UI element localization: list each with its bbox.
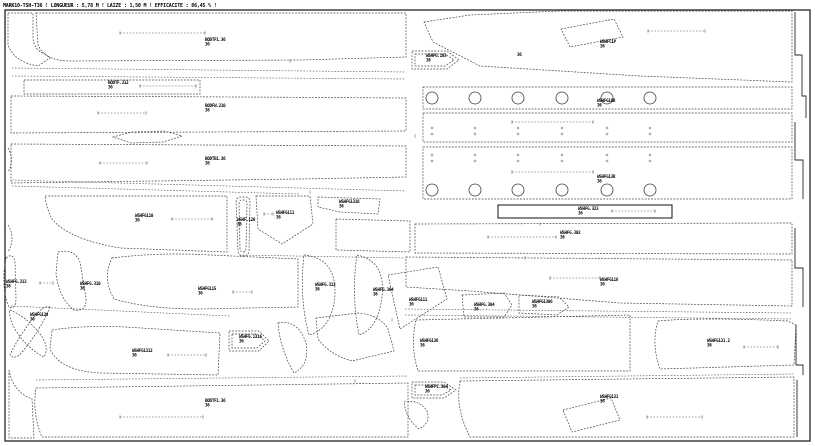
marker-header: MARK10-TSH-T36 ! LONGUEUR : 5,78 M ! LAI… — [3, 3, 217, 9]
piece-label: WSHFG13136 — [600, 394, 619, 404]
piece-label: BODFW.21036 — [205, 103, 226, 113]
piece-label: BODTF.31236 — [108, 80, 129, 90]
piece-label: WSHFPL.30436 — [425, 384, 448, 394]
piece-label: WSHFC1P36 — [600, 39, 617, 49]
piece-label: WSHFG130636 — [532, 299, 553, 309]
pattern-piece-outlines — [4, 11, 796, 438]
piece-label: WSHFG131.236 — [707, 338, 730, 348]
drill-mark — [512, 184, 524, 196]
piece-label: BODTF1.3636 — [205, 37, 226, 47]
piece-label: WSHFG.131636 — [239, 334, 262, 344]
piece-label: BODTB1.3636 — [205, 156, 226, 166]
grain-lines — [40, 29, 778, 418]
drill-mark — [426, 92, 438, 104]
piece-label: 36 — [517, 52, 522, 57]
piece-label: WSHFG11636 — [600, 277, 619, 287]
piece-label: WSHFG13636 — [420, 338, 439, 348]
drill-mark — [512, 92, 524, 104]
piece-label: WSHFG131236 — [132, 348, 153, 358]
piece-label: BODTF1.3636 — [205, 398, 226, 408]
drill-mark — [556, 92, 568, 104]
selvage-steps — [795, 12, 806, 437]
piece-label: WSHFG13836 — [30, 312, 49, 322]
drill-mark — [556, 184, 568, 196]
drill-mark — [469, 92, 481, 104]
piece-label: WSHF.12036 — [237, 217, 256, 227]
piece-label: WSHFG.30436 — [373, 287, 394, 297]
piece-label: WSHFG.31036 — [80, 281, 101, 291]
piece-label: WSHFG131636 — [339, 199, 360, 209]
piece-label: WSHFG.10336 — [426, 53, 447, 63]
piece-label: WSHFG13B36 — [597, 174, 616, 184]
drill-mark — [644, 184, 656, 196]
notch-marks — [290, 59, 651, 383]
drill-mark — [601, 184, 613, 196]
marker-border — [5, 10, 810, 441]
piece-label: WSHFG.30236 — [560, 230, 581, 240]
drill-mark — [644, 92, 656, 104]
drill-mark — [426, 184, 438, 196]
drill-marks — [426, 92, 656, 196]
piece-label: WSHFG11536 — [198, 286, 217, 296]
piece-label: WSHFG10B36 — [597, 98, 616, 108]
piece-label: WSHFG11136 — [276, 210, 295, 220]
marker-canvas: MARK10-TSH-T36 ! LONGUEUR : 5,78 M ! LAI… — [0, 0, 815, 446]
piece-labels: BODTF1.3636WSHFC1P36WSHFG.1033636WSHFG10… — [6, 37, 730, 408]
piece-label: WSHFG.31336 — [315, 282, 336, 292]
piece-label: WSHFG.32336 — [578, 206, 599, 216]
piece-label: WSHFG11036 — [135, 213, 154, 223]
piece-label: WSHFG11136 — [409, 297, 428, 307]
drill-mark — [469, 184, 481, 196]
piece-label: WSHFG.31336 — [6, 279, 27, 289]
